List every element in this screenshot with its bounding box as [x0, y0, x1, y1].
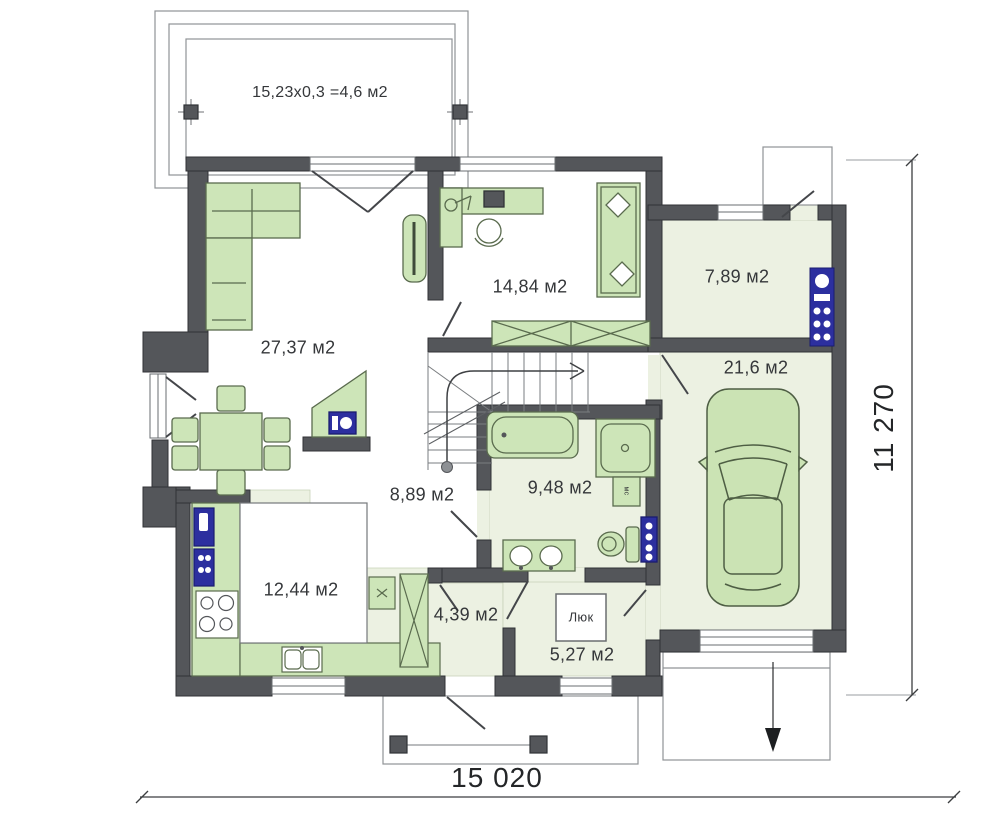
- hallway-wardrobe: [400, 574, 428, 667]
- desk-chair: [477, 219, 501, 243]
- porch-post: [530, 736, 547, 753]
- dining-table: [200, 413, 262, 470]
- bay-door-threshold: [150, 374, 166, 438]
- dimension-width-label: 15 020: [451, 762, 543, 794]
- porch-post: [390, 736, 407, 753]
- cooktop: [196, 591, 238, 638]
- shower: [596, 419, 655, 477]
- window: [460, 157, 555, 171]
- room-label-terrace: 15,23x0,3 =4,6 м2: [252, 84, 388, 102]
- room-label-bathroom: 9,48 м2: [528, 478, 593, 499]
- bathtub: [487, 412, 578, 458]
- washer-label: мс: [623, 487, 630, 496]
- driveway-arrow: [765, 662, 781, 752]
- front-entry-door-leaf: [447, 697, 485, 729]
- room-label-entry: 5,27 м2: [550, 645, 615, 666]
- floor-plan: 15,23x0,3 =4,6 м2 27,37 м2 14,84 м2 7,89…: [0, 0, 1000, 822]
- boiler-unit: [810, 268, 834, 346]
- corner-sofa: [206, 183, 300, 330]
- room-label-garage: 21,6 м2: [724, 358, 789, 379]
- stair-newel: [442, 462, 453, 473]
- room-label-office: 14,84 м2: [493, 277, 568, 298]
- stool: [369, 577, 395, 609]
- wardrobe: [492, 321, 650, 346]
- floor-plan-drawing: [0, 0, 1000, 822]
- terrace-post: [184, 105, 198, 119]
- terrace-door-leaf: [312, 171, 368, 212]
- fireplace: [312, 371, 366, 437]
- office-furniture: [440, 183, 650, 346]
- bed: [597, 183, 640, 297]
- bay-door-leaf: [166, 377, 196, 400]
- room-label-hall: 8,89 м2: [390, 485, 455, 506]
- office-door-leaf: [443, 302, 461, 336]
- room-label-boiler: 7,89 м2: [705, 267, 770, 288]
- doorway-entry-garage: [646, 585, 660, 640]
- dimension-height-label: 11 270: [868, 383, 900, 473]
- bathroom-west-door-leaf: [451, 511, 477, 537]
- rear-stoop: [763, 147, 832, 205]
- room-label-living: 27,37 м2: [261, 338, 336, 359]
- doorway-hall-garage: [648, 355, 660, 400]
- terrace-door-threshold: [310, 157, 415, 171]
- terrace-post: [453, 105, 467, 119]
- room-label-hallway: 4,39 м2: [434, 605, 499, 626]
- front-porch: [383, 696, 638, 764]
- kitchen-island: [240, 503, 367, 643]
- double-sink: [503, 540, 575, 571]
- garage-door: [700, 630, 813, 652]
- kitchen-sink: [282, 646, 322, 672]
- tall-cabinet: [403, 215, 426, 282]
- dining-table-set: [172, 386, 290, 495]
- window: [718, 205, 763, 220]
- boiler-unit-bathroom: [641, 517, 657, 562]
- hatch-label: Люк: [569, 610, 594, 625]
- fireplace-base-wall: [303, 437, 370, 451]
- room-label-kitchen: 12,44 м2: [264, 580, 339, 601]
- window: [560, 678, 612, 694]
- window: [272, 678, 345, 694]
- car-top-view: [699, 389, 807, 606]
- terrace-door-leaf: [368, 171, 413, 212]
- doorway-bathroom-west: [477, 490, 489, 540]
- monitor: [484, 191, 504, 207]
